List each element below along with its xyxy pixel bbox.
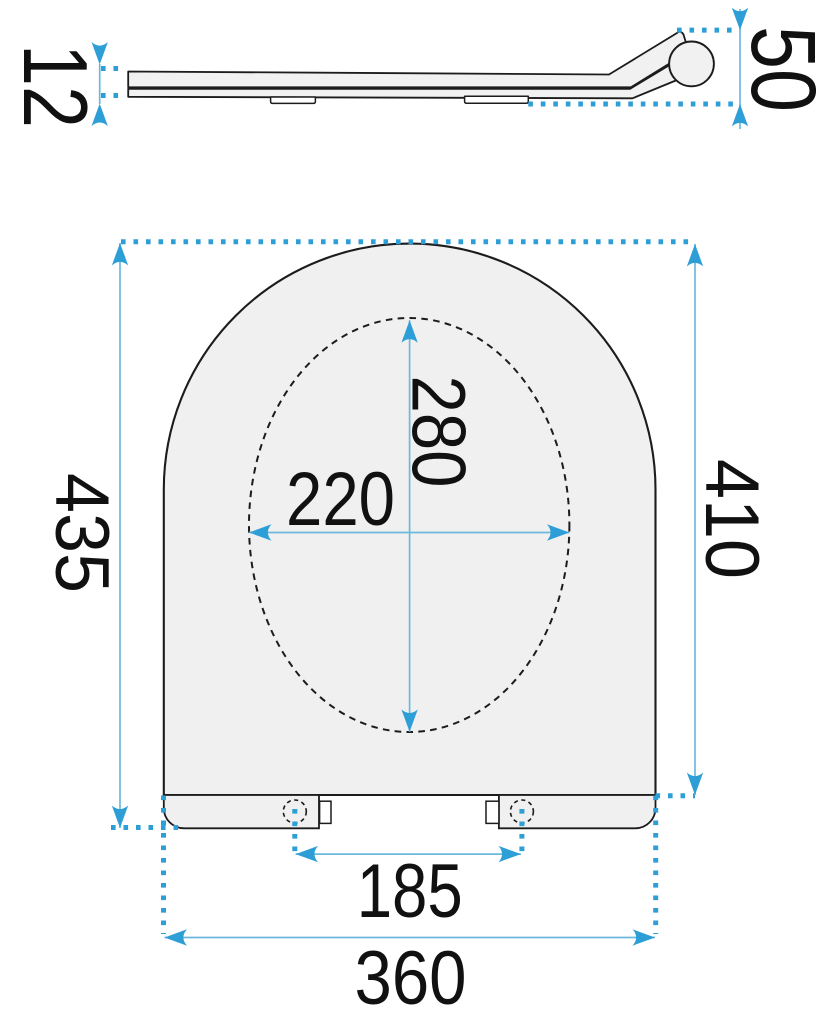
svg-text:360: 360 — [355, 936, 467, 1020]
svg-text:280: 280 — [396, 376, 481, 488]
svg-text:410: 410 — [689, 459, 774, 579]
svg-text:185: 185 — [357, 849, 463, 934]
svg-text:50: 50 — [732, 26, 829, 112]
svg-text:435: 435 — [39, 473, 124, 593]
svg-text:220: 220 — [286, 457, 395, 542]
svg-text:12: 12 — [4, 44, 105, 128]
